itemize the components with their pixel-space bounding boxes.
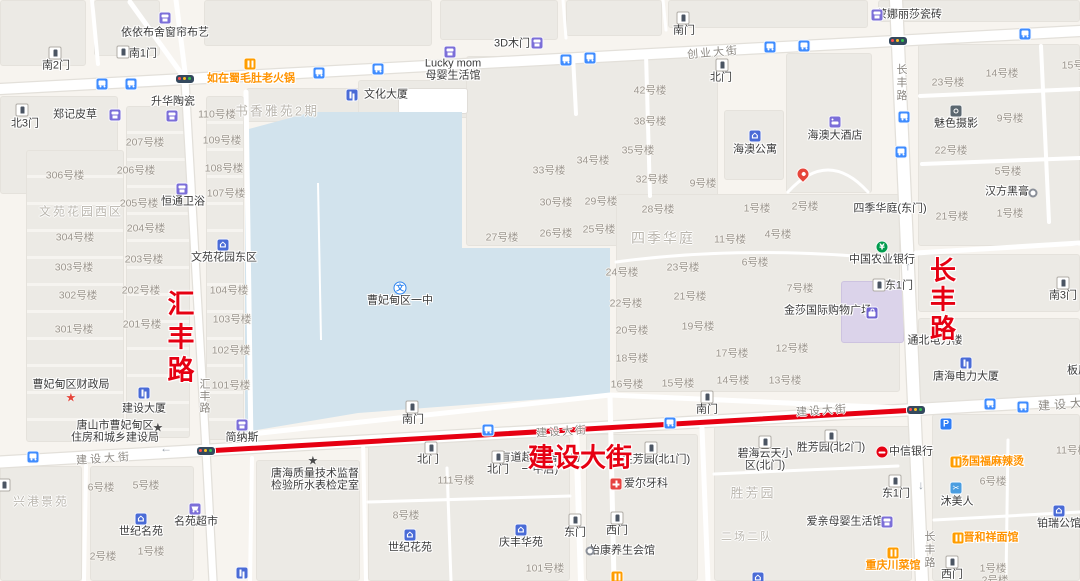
poi-label-line: 板厂	[1067, 365, 1080, 377]
area-label: 书香雅苑2期	[235, 101, 319, 120]
poi-label[interactable]: 建设大厦	[122, 403, 166, 415]
unit-label: 303号楼	[55, 260, 94, 275]
poi-label[interactable]: 爱尔牙科	[624, 478, 668, 490]
unit-label: 26号楼	[540, 226, 573, 241]
bus-stop-icon[interactable]	[584, 52, 597, 65]
poi-label-line: 爱亲母婴生活馆	[807, 516, 884, 528]
unit-label: 28号楼	[642, 202, 675, 217]
unit-label: 9号楼	[997, 111, 1024, 126]
poi-label-line: 碧海云天小	[738, 449, 793, 461]
bus-stop-icon[interactable]	[125, 78, 138, 91]
unit-label: 111号楼	[438, 473, 475, 488]
poi-label-line: 庆丰华苑	[499, 537, 543, 549]
bus-stop-icon[interactable]	[372, 63, 385, 76]
gate-label[interactable]: 南门	[673, 25, 695, 37]
unit-label: 17号楼	[716, 346, 749, 361]
poi-label[interactable]: 文化大厦	[364, 89, 408, 101]
bus-stop-icon[interactable]	[27, 451, 40, 464]
unit-label: 18号楼	[616, 351, 649, 366]
road	[916, 243, 1080, 253]
unit-label: 30号楼	[540, 195, 573, 210]
gate-label[interactable]: 南3门	[1049, 290, 1077, 302]
poi-label-line: 铂瑞公馆	[1037, 518, 1080, 530]
poi-label-line: 沐美人	[941, 496, 974, 508]
bus-stop-icon[interactable]	[1017, 401, 1030, 414]
med-icon[interactable]	[610, 478, 623, 491]
bus-stop-icon[interactable]	[664, 417, 677, 430]
poi-label-line: 晋和祥面馆	[964, 532, 1019, 544]
unit-label: 306号楼	[46, 168, 85, 183]
bldg-icon[interactable]	[346, 89, 359, 102]
poi-label[interactable]: 郑记皮草	[53, 109, 97, 121]
poi-label[interactable]: 曹妃甸区一中	[367, 295, 433, 307]
unit-label: 38号楼	[634, 114, 667, 129]
poi-label[interactable]: 庆丰华苑	[499, 537, 543, 549]
unit-label: 5号楼	[995, 164, 1022, 179]
poi-label-line: 海澳大酒店	[808, 130, 863, 142]
poi-label-line: 曹妃甸区财政局	[33, 379, 110, 391]
unit-label: 24号楼	[606, 265, 639, 280]
house-icon[interactable]	[515, 524, 528, 537]
poi-label-line: 北门	[487, 464, 509, 476]
gate-label[interactable]: 南1门	[129, 48, 157, 60]
unit-label: 1号楼	[138, 544, 165, 559]
bus-stop-icon[interactable]	[96, 78, 109, 91]
poi-label[interactable]: 沐美人	[941, 496, 974, 508]
poi-label[interactable]: 名苑超市	[174, 516, 218, 528]
poi-label-line: 名苑超市	[174, 516, 218, 528]
gate-label[interactable]: 北门	[487, 464, 509, 476]
unit-label: 7号楼	[787, 281, 814, 296]
gate-label[interactable]: 胜芳园(北2门)	[797, 442, 865, 454]
poi-label-line: 北门	[417, 454, 439, 466]
shop-icon[interactable]	[881, 516, 894, 529]
route-annotation-label: 建设大街	[528, 438, 632, 475]
house-icon[interactable]	[217, 239, 230, 252]
poi-label[interactable]: 升华陶瓷	[151, 96, 195, 108]
ring-icon[interactable]	[586, 547, 595, 556]
gate-icon[interactable]	[759, 436, 772, 449]
star-icon[interactable]	[67, 392, 80, 405]
unit-label: 14号楼	[986, 66, 1019, 81]
poi-label-line: 南门	[696, 404, 718, 416]
school-icon[interactable]	[394, 282, 407, 295]
gate-label[interactable]: 西门	[606, 525, 628, 537]
gate-icon[interactable]	[406, 401, 419, 414]
poi-label-line: 升华陶瓷	[151, 96, 195, 108]
gate-icon[interactable]	[701, 391, 714, 404]
poi-label-line: 唐山市曹妃甸区	[71, 421, 159, 433]
unit-label: 302号楼	[59, 288, 98, 303]
unit-label: 27号楼	[486, 230, 519, 245]
poi-label-line: 中国农业银行	[849, 254, 915, 266]
poi-label-line: 简纳斯	[226, 432, 259, 444]
unit-label: 101号楼	[526, 561, 565, 576]
unit-label: 23号楼	[932, 75, 965, 90]
shop-icon[interactable]	[531, 37, 544, 50]
area-label: 兴港景苑	[13, 493, 69, 510]
bankg-icon[interactable]	[876, 241, 889, 254]
poi-label-line: 爱尔牙科	[624, 478, 668, 490]
gate-icon[interactable]	[1057, 277, 1070, 290]
bus-stop-icon[interactable]	[798, 40, 811, 53]
unit-label: 1号楼	[744, 201, 771, 216]
poi-label-line: 西门	[941, 569, 963, 581]
poi-label[interactable]: 恒通卫浴	[161, 196, 205, 208]
poi-label[interactable]: 简纳斯	[226, 432, 259, 444]
unit-label: 34号楼	[577, 153, 610, 168]
poi-label[interactable]: 汉方黑膏	[985, 186, 1029, 198]
scissors-icon[interactable]	[950, 482, 963, 495]
unit-label: 2号楼	[792, 199, 819, 214]
unit-label: 14号楼	[717, 373, 750, 388]
poi-label[interactable]: 四季华庭(东门)	[853, 203, 926, 215]
bus-stop-icon[interactable]	[313, 67, 326, 80]
poi-label-line: 母婴生活馆	[425, 70, 481, 82]
poi-label-line: 建设大厦	[122, 403, 166, 415]
unit-label: 2号楼	[90, 549, 117, 564]
unit-label: 11号楼	[1056, 443, 1080, 458]
poi-label[interactable]: 魅色摄影	[934, 118, 978, 130]
bus-stop-icon[interactable]	[898, 111, 911, 124]
unit-label: 13号楼	[769, 373, 802, 388]
unit-label: 107号楼	[207, 186, 246, 201]
poi-label[interactable]: 板厂	[1067, 365, 1080, 377]
poi-label[interactable]: 唐海电力大厦	[933, 371, 999, 383]
unit-label: 2号楼	[982, 573, 1009, 581]
unit-label: 21号楼	[936, 209, 969, 224]
gate-label[interactable]: 胜芳园(北1门)	[622, 454, 690, 466]
poi-label[interactable]: 重庆川菜馆	[866, 560, 921, 572]
unit-label: 15号楼	[1062, 58, 1080, 73]
poi-label[interactable]: 世纪名苑	[119, 526, 163, 538]
unit-label: 203号楼	[125, 252, 164, 267]
poi-label-line: 中信银行	[889, 446, 933, 458]
poi-label-line: 南3门	[1049, 290, 1077, 302]
traffic-light-icon	[888, 36, 908, 46]
gate-icon[interactable]	[49, 47, 62, 60]
house-icon[interactable]	[404, 529, 417, 542]
unit-label: 20号楼	[616, 323, 649, 338]
gate-icon[interactable]	[946, 556, 959, 569]
poi-label-line: 西门	[606, 525, 628, 537]
poi-label[interactable]: 海澳公寓	[733, 144, 777, 156]
route-annotation-label: 长丰路	[923, 257, 960, 344]
bus-stop-icon[interactable]	[764, 41, 777, 54]
road	[563, 0, 566, 38]
poi-label[interactable]: 3D木门	[494, 38, 530, 50]
poi-label-line: 文化大厦	[364, 89, 408, 101]
poi-label[interactable]: 杨国福麻辣烫	[958, 456, 1024, 468]
poi-label-line: 东门	[564, 527, 586, 539]
poi-label[interactable]: 晋和祥面馆	[964, 532, 1019, 544]
bus-stop-icon[interactable]	[560, 54, 573, 67]
bldg-icon[interactable]	[138, 387, 151, 400]
gate-icon[interactable]	[425, 442, 438, 455]
road	[368, 496, 570, 502]
unit-label: 108号楼	[205, 161, 244, 176]
poi-label-line: 恒通卫浴	[161, 196, 205, 208]
poi-label-line: 胜芳园(北2门)	[797, 442, 865, 454]
road-name-label: 汇丰路	[196, 378, 212, 414]
bus-stop-icon[interactable]	[482, 424, 495, 437]
poi-label-line: 区(北门)	[738, 460, 793, 472]
poi-label-line: 南门	[402, 414, 424, 426]
poi-label[interactable]: 文苑花园东区	[191, 252, 257, 264]
poi-label-line: 检验所水表检定室	[271, 480, 359, 492]
unit-label: 304号楼	[56, 230, 95, 245]
rest-icon[interactable]	[950, 456, 963, 469]
poi-label-line: 世纪名苑	[119, 526, 163, 538]
poi-label[interactable]: 海澳大酒店	[808, 130, 863, 142]
poi-label[interactable]: 金莎国际购物广场	[784, 305, 872, 317]
unit-label: 1号楼	[997, 206, 1024, 221]
star-icon[interactable]	[154, 422, 167, 435]
poi-label-line: 文苑花园东区	[191, 252, 257, 264]
rest-icon[interactable]	[244, 58, 257, 71]
poi-label-line: 唐海电力大厦	[933, 371, 999, 383]
unit-label: 110号楼	[198, 107, 236, 122]
gate-icon[interactable]	[16, 104, 29, 117]
poi-label-line: 重庆川菜馆	[866, 560, 921, 572]
poi-label[interactable]: 依依布舍窗帘布艺	[121, 27, 209, 39]
poi-label-line: 3D木门	[494, 38, 530, 50]
road	[250, 458, 252, 581]
unit-label: 11号楼	[714, 232, 746, 247]
gate-label[interactable]: 南2门	[42, 60, 70, 72]
unit-label: 6号楼	[980, 474, 1007, 489]
poi-label[interactable]: 世纪花苑	[388, 542, 432, 554]
house-icon[interactable]	[1053, 505, 1066, 518]
poi-label[interactable]: 中信银行	[889, 446, 933, 458]
poi-label-line: 唐海质量技术监督	[271, 469, 359, 481]
unit-label: 15号楼	[662, 376, 695, 391]
unit-label: 6号楼	[88, 480, 115, 495]
unit-label: 22号楼	[935, 143, 968, 158]
gate-label[interactable]: 北门	[710, 72, 732, 84]
road	[84, 466, 86, 581]
poi-label-line: 四季华庭(东门)	[853, 203, 926, 215]
bldg-icon[interactable]	[960, 357, 973, 370]
poi-label-line: 住房和城乡建设局	[71, 432, 159, 444]
gate-icon[interactable]	[0, 479, 11, 492]
rest-icon[interactable]	[952, 532, 965, 545]
unit-label: 6号楼	[742, 255, 769, 270]
star-icon[interactable]	[309, 455, 322, 468]
unit-label: 201号楼	[123, 317, 162, 332]
building-icon[interactable]	[236, 567, 249, 580]
poi-label[interactable]: 曹妃甸区财政局	[33, 379, 110, 391]
road	[920, 89, 1080, 96]
gate-icon[interactable]	[645, 442, 658, 455]
road	[1041, 46, 1049, 222]
poi-label-line: 金莎国际购物广场	[784, 305, 872, 317]
poi-label[interactable]: Lucky mom母婴生活馆	[425, 59, 481, 82]
unit-label: 103号楼	[213, 312, 252, 327]
road	[702, 428, 708, 581]
unit-label: 202号楼	[122, 283, 161, 298]
poi-label-line: 如在蜀毛肚老火锅	[207, 73, 295, 85]
poi-label-line: 东1门	[885, 280, 913, 292]
unit-label: 23号楼	[667, 260, 700, 275]
poi-label-line: Lucky mom	[425, 59, 481, 71]
poi-label[interactable]: 铂瑞公馆	[1037, 518, 1080, 530]
bus-stop-icon[interactable]	[984, 398, 997, 411]
poi-label[interactable]: 唐山市曹妃甸区住房和城乡建设局	[71, 421, 159, 444]
gate-icon[interactable]	[677, 12, 690, 25]
bed-icon[interactable]	[829, 116, 842, 129]
poi-label-line: 胜芳园(北1门)	[622, 454, 690, 466]
shop-icon[interactable]	[109, 109, 122, 122]
unit-label: 109号楼	[203, 133, 242, 148]
road-name-label: 长丰路	[921, 531, 937, 570]
map-canvas[interactable]: 依依布舍窗帘布艺如在蜀毛肚老火锅郑记皮草升华陶瓷恒通卫浴文化大厦3D木门Luck…	[0, 0, 1080, 581]
road	[663, 0, 666, 30]
gate-label[interactable]: 南门	[402, 414, 424, 426]
road-name-label: 建设大	[1037, 394, 1080, 414]
bus-stop-icon[interactable]	[1019, 28, 1032, 41]
poi-label-line: 怡康养生会馆	[589, 545, 655, 557]
unit-label: 204号楼	[127, 221, 166, 236]
gate-label[interactable]: 南门	[696, 404, 718, 416]
poi-label-line: 南门	[673, 25, 695, 37]
gate-label[interactable]: 北门	[417, 454, 439, 466]
traffic-light-icon	[175, 74, 195, 84]
parking-icon[interactable]	[940, 418, 953, 431]
shop-icon[interactable]	[159, 12, 172, 25]
road	[92, 0, 98, 64]
area-label: 二场二队	[721, 528, 773, 544]
unit-label: 42号楼	[634, 83, 667, 98]
gate-label[interactable]: 东1门	[885, 280, 913, 292]
poi-label[interactable]: 爱亲母婴生活馆	[807, 516, 884, 528]
direction-arrow-icon: ↓	[918, 478, 924, 492]
house-icon[interactable]	[752, 572, 765, 581]
road-name-label: 长丰路	[893, 64, 909, 103]
unit-label: 21号楼	[674, 289, 707, 304]
unit-label: 32号楼	[636, 172, 669, 187]
poi-label-line: 世纪花苑	[388, 542, 432, 554]
gate-icon[interactable]	[825, 430, 838, 443]
gate-label[interactable]: 北3门	[11, 118, 39, 130]
unit-label: 29号楼	[585, 194, 618, 209]
gate-label[interactable]: 碧海云天小区(北门)	[738, 449, 793, 472]
unit-label: 101号楼	[212, 378, 251, 393]
poi-label-line: 北门	[710, 72, 732, 84]
ring-icon[interactable]	[1029, 189, 1038, 198]
gate-icon[interactable]	[611, 512, 624, 525]
water-area	[245, 112, 610, 432]
area-label: 四季华庭	[631, 228, 695, 248]
bus-stop-icon[interactable]	[895, 146, 908, 159]
house-icon[interactable]	[135, 513, 148, 526]
poi-label[interactable]: 蒙娜丽莎瓷砖	[876, 9, 942, 21]
poi-label-line: 汉方黑膏	[985, 186, 1029, 198]
unit-label: 8号楼	[393, 508, 420, 523]
poi-label-line: 郑记皮草	[53, 109, 97, 121]
unit-label: 205号楼	[120, 196, 159, 211]
traffic-light-icon	[906, 405, 926, 415]
restaurant-icon[interactable]	[611, 571, 624, 581]
direction-arrow-icon: ←	[160, 441, 172, 455]
area-label: 胜芳园	[730, 483, 775, 502]
unit-label: 25号楼	[583, 222, 616, 237]
unit-label: 301号楼	[55, 322, 94, 337]
unit-label: 104号楼	[210, 283, 249, 298]
poi-label-line: 南2门	[42, 60, 70, 72]
unit-label: 206号楼	[117, 163, 156, 178]
unit-label: 16号楼	[611, 377, 644, 392]
rest-icon[interactable]	[887, 547, 900, 560]
gate-icon[interactable]	[889, 475, 902, 488]
unit-label: 33号楼	[533, 163, 566, 178]
gate-label[interactable]: 东门	[564, 527, 586, 539]
unit-label: 19号楼	[682, 319, 715, 334]
bankr-icon[interactable]	[876, 446, 889, 459]
poi-label-line: 依依布舍窗帘布艺	[121, 27, 209, 39]
shop-icon[interactable]	[871, 9, 884, 22]
poi-label-line: 东1门	[882, 488, 910, 500]
gate-icon[interactable]	[117, 46, 130, 59]
shop-icon[interactable]	[176, 183, 189, 196]
shop-icon[interactable]	[444, 46, 457, 59]
poi-label[interactable]: 如在蜀毛肚老火锅	[207, 73, 295, 85]
poi-label-line: 魅色摄影	[934, 118, 978, 130]
shop-icon[interactable]	[236, 419, 249, 432]
unit-label: 102号楼	[212, 343, 251, 358]
traffic-light-icon	[196, 446, 216, 456]
gate-icon[interactable]	[569, 514, 582, 527]
cart-icon[interactable]	[189, 503, 202, 516]
poi-label[interactable]: 中国农业银行	[849, 254, 915, 266]
poi-label-line: 海澳公寓	[733, 144, 777, 156]
bag-icon[interactable]	[866, 307, 879, 320]
unit-label: 35号楼	[622, 143, 655, 158]
road	[573, 56, 576, 114]
gate-icon[interactable]	[492, 451, 505, 464]
unit-label: 9号楼	[690, 176, 717, 191]
unit-label: 4号楼	[765, 227, 792, 242]
unit-label: 12号楼	[776, 341, 809, 356]
area-label: 文苑花园西区	[39, 203, 123, 220]
camera-icon[interactable]	[950, 105, 963, 118]
poi-label[interactable]: 唐海质量技术监督检验所水表检定室	[271, 469, 359, 492]
gate-label[interactable]: 东1门	[882, 488, 910, 500]
unit-label: 22号楼	[610, 296, 643, 311]
road	[363, 440, 366, 581]
gate-icon[interactable]	[716, 59, 729, 72]
poi-label-line: 南1门	[129, 48, 157, 60]
gate-icon[interactable]	[873, 279, 886, 292]
poi-label[interactable]: 怡康养生会馆	[589, 545, 655, 557]
poi-label-line: 曹妃甸区一中	[367, 295, 433, 307]
poi-label-line: 杨国福麻辣烫	[958, 456, 1024, 468]
unit-label: 207号楼	[126, 135, 165, 150]
gate-label[interactable]: 西门	[941, 569, 963, 581]
shop-icon[interactable]	[166, 110, 179, 123]
poi-label-line: 蒙娜丽莎瓷砖	[876, 9, 942, 21]
poi-label-line: 北3门	[11, 118, 39, 130]
house-icon[interactable]	[749, 130, 762, 143]
route-annotation-label: 汇丰路	[159, 290, 198, 389]
unit-label: 5号楼	[133, 478, 160, 493]
